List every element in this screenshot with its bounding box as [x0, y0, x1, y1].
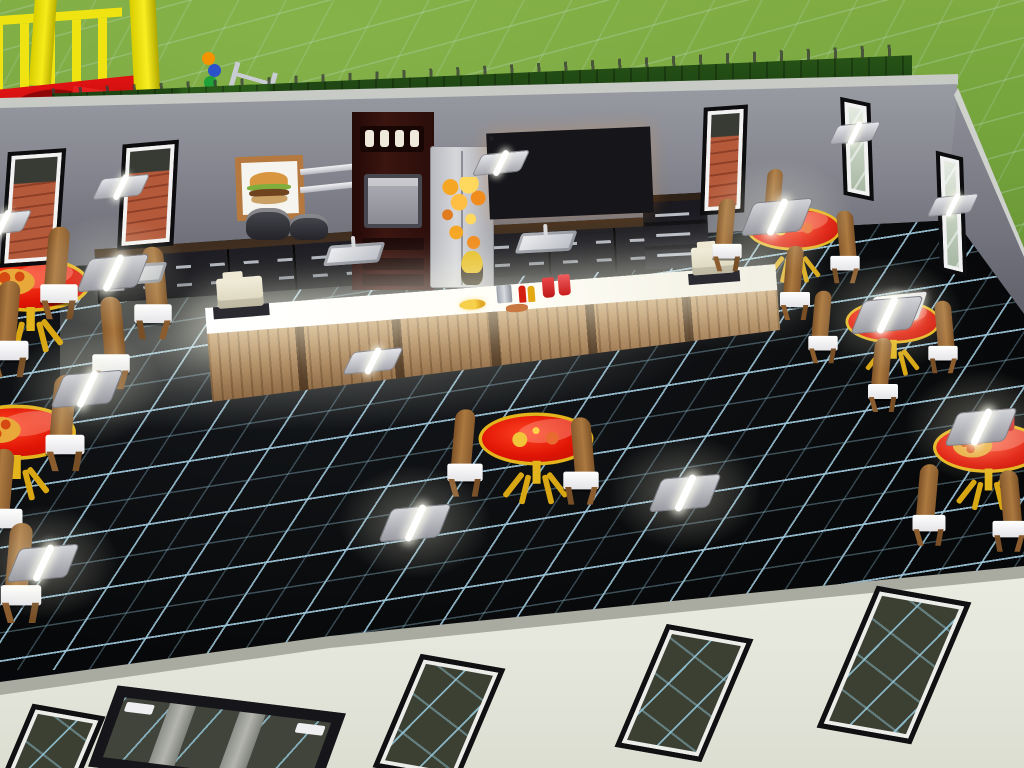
wall-sconce[interactable] [349, 349, 397, 374]
chair-back [451, 409, 476, 470]
fridge-gnome-figure [461, 251, 483, 285]
ceiling-light[interactable] [14, 546, 72, 580]
chair-leg [565, 487, 574, 505]
oven-knobs [360, 126, 424, 152]
door-handle [294, 723, 325, 736]
chair-leg [935, 529, 943, 546]
ceiling-light[interactable] [952, 410, 1010, 444]
ceiling-light[interactable] [58, 372, 116, 406]
wall-sconce[interactable] [0, 212, 26, 236]
chair-leg [801, 305, 809, 320]
dining-chair[interactable] [993, 470, 1024, 551]
chair-leg [781, 305, 790, 320]
dining-chair[interactable] [563, 417, 598, 504]
mustard-bottle[interactable] [527, 286, 535, 302]
chair-leg [994, 535, 1002, 552]
sink-faucet [543, 224, 548, 238]
door-handle [124, 702, 155, 715]
wall-sconce[interactable] [834, 123, 875, 145]
counter-sink[interactable] [325, 236, 383, 268]
drink-cup[interactable] [557, 274, 571, 296]
snack-panel [489, 136, 493, 140]
stock-pots[interactable] [246, 204, 346, 244]
chair-leg [587, 487, 598, 505]
cash-register-left[interactable] [211, 273, 270, 319]
door-mullion [218, 712, 266, 768]
ketchup-bottle[interactable] [518, 285, 526, 302]
ceiling-light[interactable] [386, 506, 444, 540]
ceiling-light[interactable] [748, 200, 806, 234]
register-body [216, 276, 264, 309]
wall-sconce[interactable] [478, 152, 524, 176]
wall-sconce[interactable] [932, 195, 973, 217]
chair-leg [72, 452, 82, 472]
register-keys [222, 271, 243, 281]
condiment-set [511, 422, 562, 452]
chair-leg [913, 529, 923, 546]
chair-leg [0, 358, 3, 378]
door-mullion [148, 703, 196, 766]
counter-sink[interactable] [517, 225, 574, 256]
chair-back [570, 417, 595, 478]
game-viewport [0, 0, 1024, 768]
oven-drawer [362, 274, 424, 286]
ceiling-light[interactable] [84, 256, 142, 290]
chair-leg [47, 452, 59, 472]
table-pedestal [533, 461, 541, 484]
napkin-dispenser[interactable] [496, 284, 512, 303]
chair-leg [1014, 535, 1024, 552]
chair-leg [889, 397, 897, 412]
oven-door [364, 174, 422, 228]
ceiling-light[interactable] [858, 298, 916, 332]
sink-faucet [351, 236, 356, 250]
wall-sconce[interactable] [98, 176, 144, 200]
drink-cup[interactable] [542, 277, 555, 298]
chair-leg [869, 397, 878, 412]
ceiling-light[interactable] [656, 476, 714, 510]
fridge-fruit-magnets [433, 177, 491, 261]
